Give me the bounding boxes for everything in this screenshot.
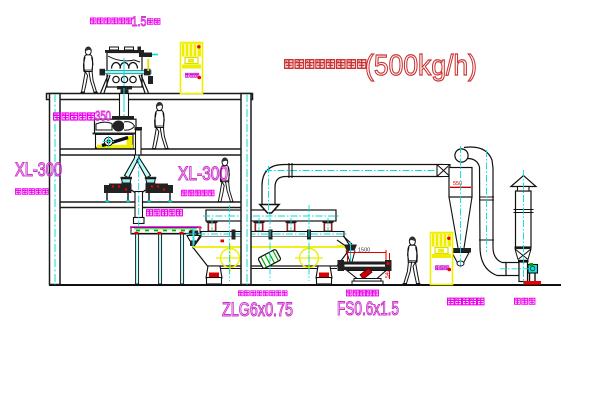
svg-text:ZLG6x0.75: ZLG6x0.75 [222,300,293,321]
svg-text:1.5: 1.5 [132,13,147,29]
svg-text:FS0.6x1.5: FS0.6x1.5 [337,299,399,320]
svg-text:XL-300: XL-300 [178,164,228,185]
svg-text:XL-300: XL-300 [15,160,62,181]
svg-text:350: 350 [95,108,111,124]
svg-text:1500: 1500 [358,248,370,254]
svg-text:(500kg/h): (500kg/h) [365,50,477,82]
